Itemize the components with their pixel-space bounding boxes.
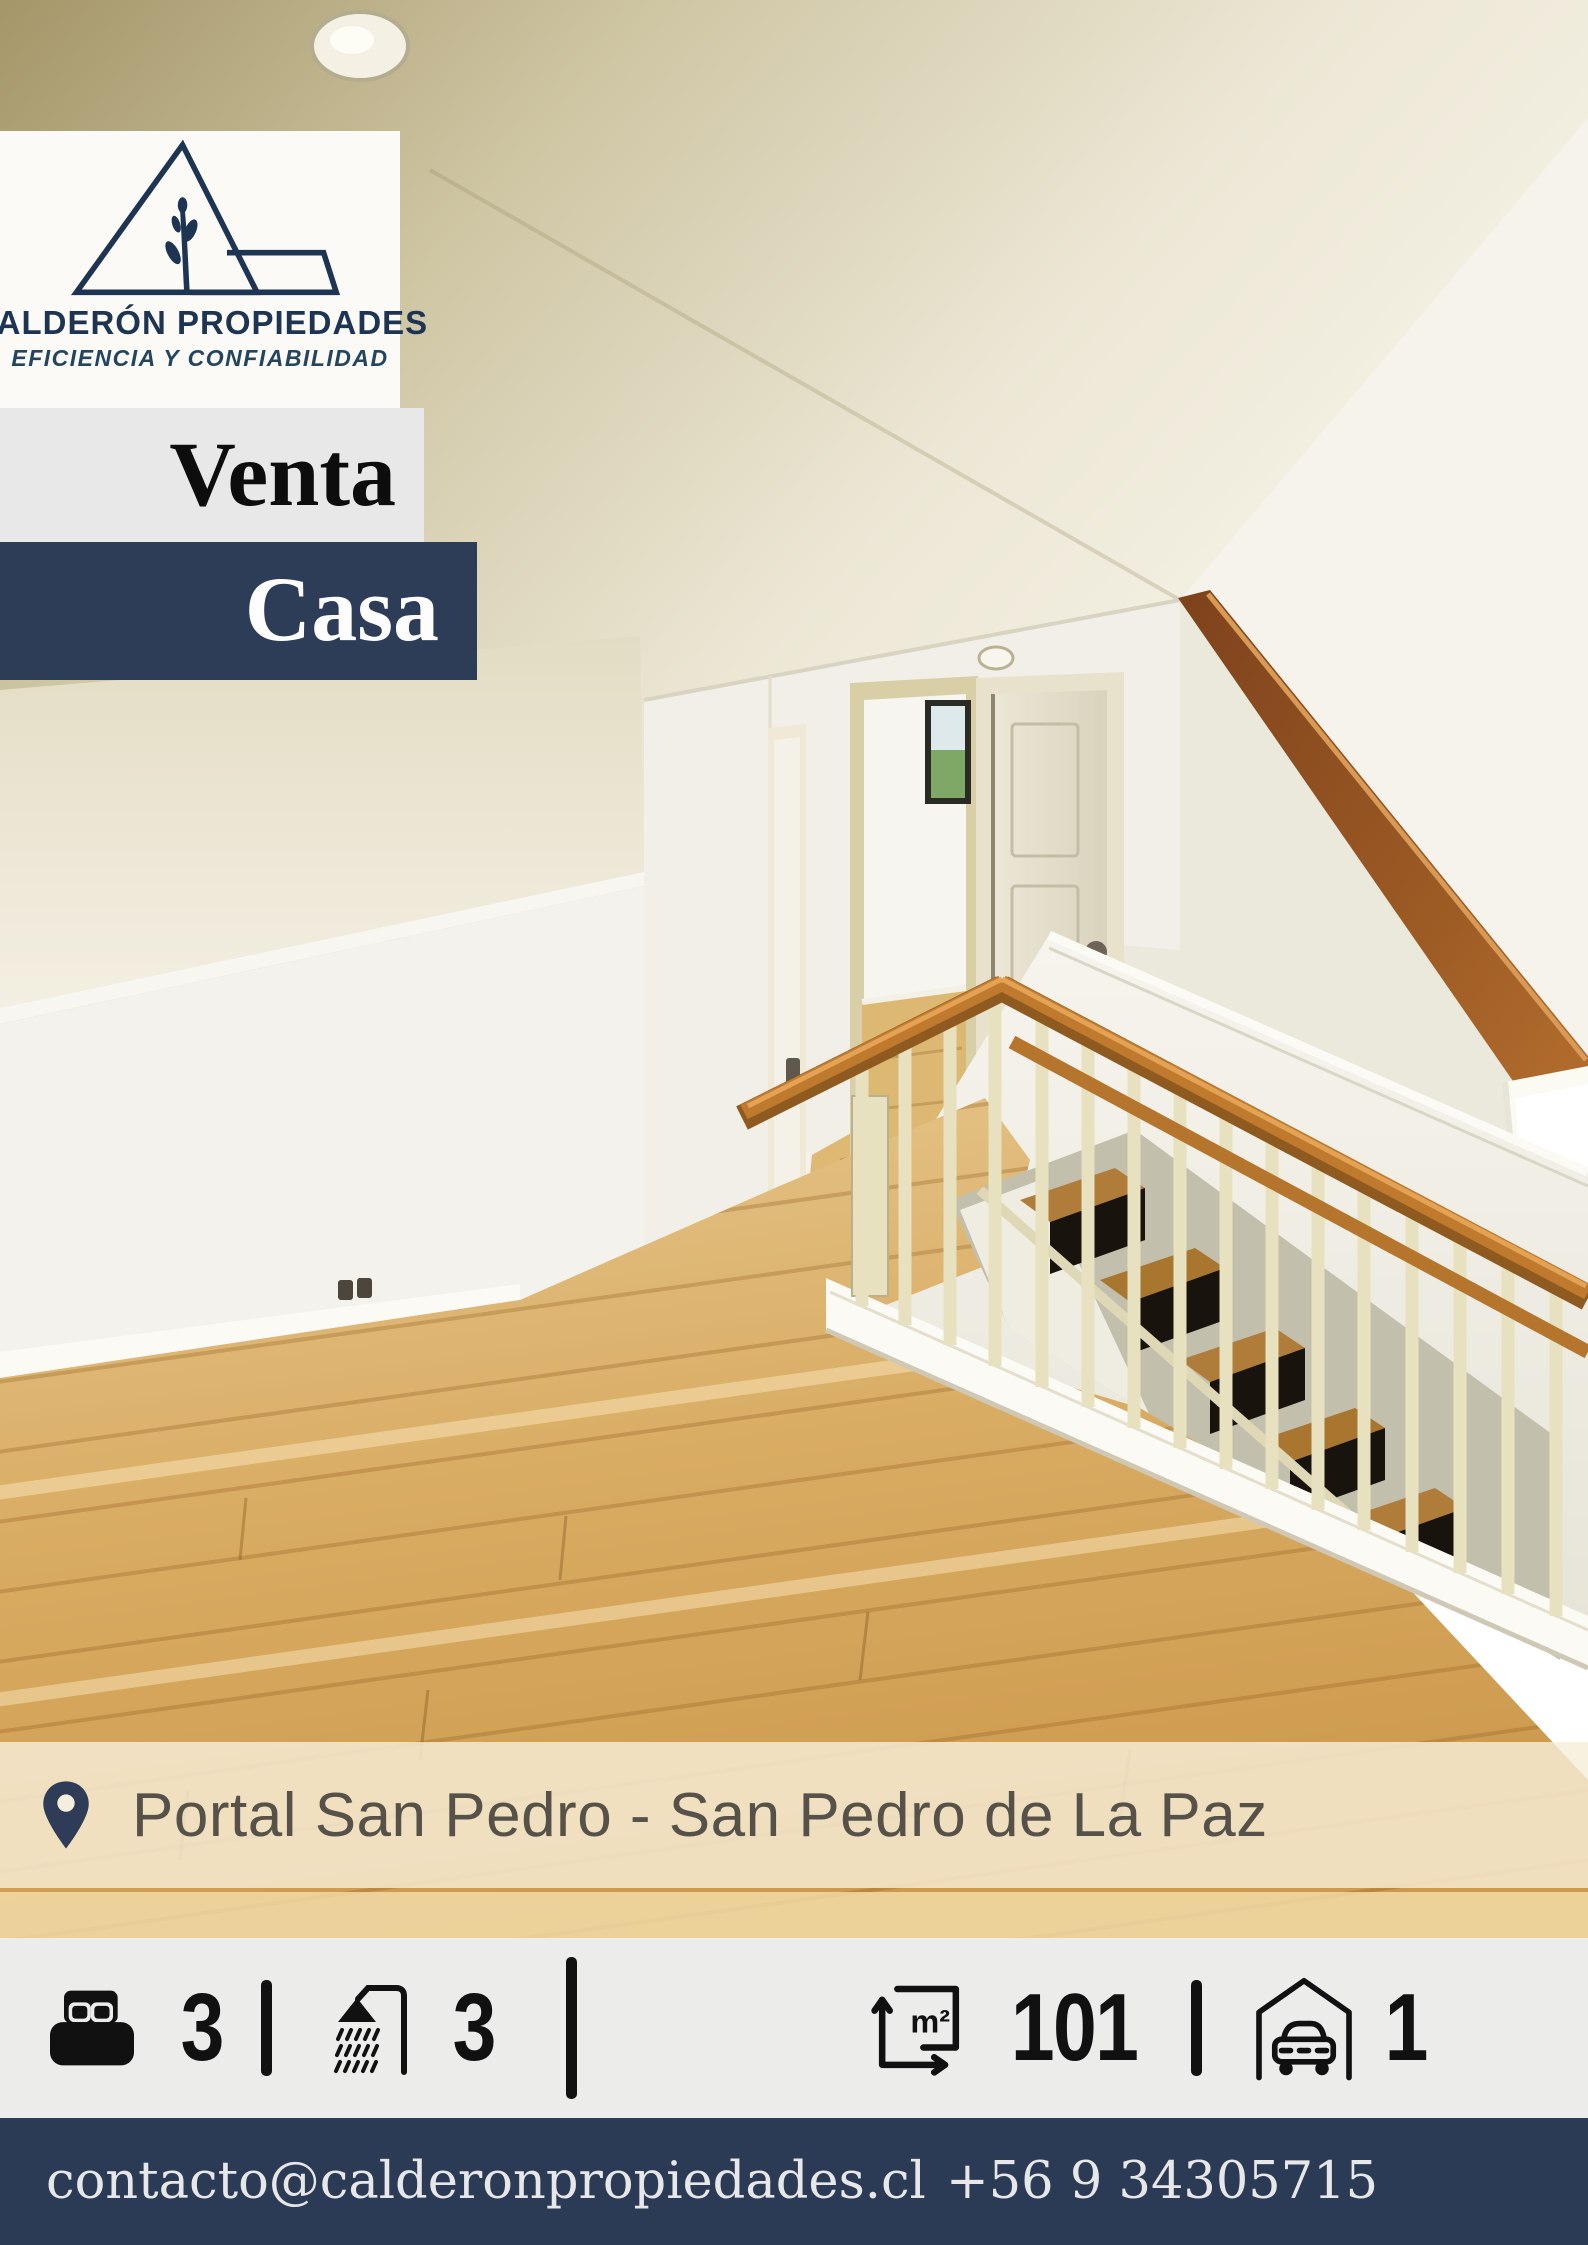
hallway-smoke-detector <box>979 647 1013 669</box>
parking-value: 1 <box>1385 1973 1427 2083</box>
triangle-house-plant-logo <box>30 137 370 305</box>
contact-email: contacto@calderonpropiedades.cl <box>46 2118 926 2245</box>
stats-bar: 3 3 <box>0 1938 1588 2118</box>
plant-sprig <box>162 197 200 292</box>
brand-logo-card: CALDERÓN PROPIEDADES EFICIENCIA Y CONFIA… <box>0 131 400 408</box>
property-type-ribbon: Casa <box>0 542 477 680</box>
stat-parking: 1 <box>1250 1973 1431 2083</box>
shower-icon <box>328 1974 424 2082</box>
stat-area: m² 101 <box>867 1973 1151 2083</box>
stat-bathrooms: 3 <box>328 1973 499 2083</box>
square-meters-unit: m² <box>910 2003 950 2039</box>
stat-bedrooms: 3 <box>36 1973 227 2083</box>
area-value: 101 <box>1011 1973 1137 2083</box>
left-wall <box>0 636 680 1380</box>
brand-name: CALDERÓN PROPIEDADES <box>0 305 428 341</box>
location-bar: Portal San Pedro - San Pedro de La Paz <box>0 1742 1588 1888</box>
square-meters-icon: m² <box>867 1976 971 2080</box>
location-pin-icon <box>40 1779 92 1851</box>
stats-divider <box>261 1980 272 2076</box>
contact-footer: contacto@calderonpropiedades.cl +56 9 34… <box>0 2118 1588 2245</box>
operation-ribbon: Venta <box>0 408 424 542</box>
brand-tagline: EFICIENCIA Y CONFIABILIDAD <box>11 343 388 373</box>
contact-phone: +56 9 34305715 <box>946 2118 1378 2245</box>
bedrooms-value: 3 <box>181 1973 223 2083</box>
stats-divider <box>566 1957 577 2099</box>
bathrooms-value: 3 <box>453 1973 495 2083</box>
bed-icon <box>36 1986 148 2070</box>
room-window <box>925 700 971 804</box>
location-text: Portal San Pedro - San Pedro de La Paz <box>132 1780 1268 1851</box>
garage-icon <box>1250 1974 1358 2082</box>
stats-divider <box>1191 1980 1202 2076</box>
